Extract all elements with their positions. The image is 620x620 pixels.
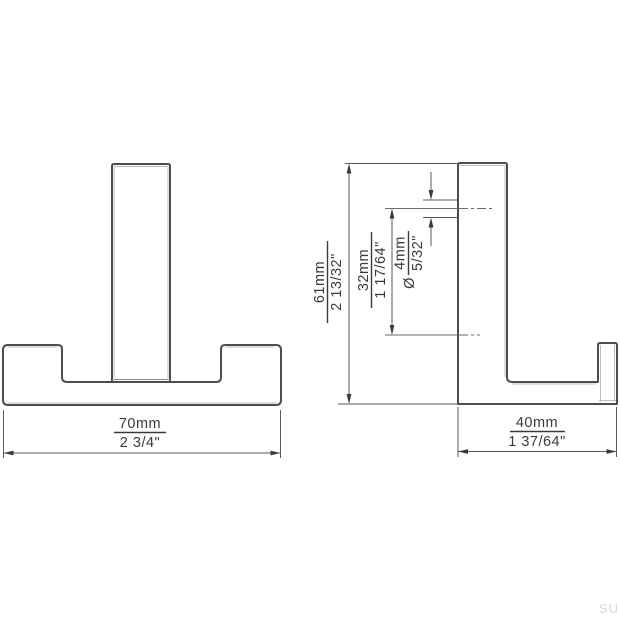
- side-view-outline: [458, 163, 617, 404]
- dimension-hole-offset: 32mm 1 17/64": [356, 209, 394, 336]
- arrow-left-icon: [458, 449, 468, 454]
- height-inch: 2 13/32": [329, 253, 345, 311]
- front-width-inch: 2 3/4": [120, 435, 160, 451]
- front-width-mm: 70mm: [119, 416, 161, 432]
- side-view-edge-highlights: [460, 166, 616, 403]
- arrow-down-icon: [347, 394, 352, 404]
- technical-drawing: 70mm 2 3/4": [0, 0, 620, 620]
- arrow-right-icon: [271, 451, 281, 456]
- hole-dia-mm: 4mm: [393, 236, 409, 270]
- hole-detail-top: [385, 200, 492, 218]
- front-view-stem-outline: [112, 164, 170, 382]
- arrow-up-icon: [429, 218, 434, 228]
- arrow-up-icon: [347, 164, 352, 174]
- side-width-mm: 40mm: [516, 415, 558, 431]
- arrow-up-icon: [390, 209, 395, 219]
- hole-dia-symbol: Ø: [402, 277, 418, 289]
- arrow-left-icon: [4, 451, 14, 456]
- side-width-inch: 1 37/64": [508, 434, 566, 450]
- arrow-down-icon: [429, 190, 434, 200]
- dimension-hole-diameter: Ø 4mm 5/32": [393, 172, 434, 289]
- arrow-down-icon: [390, 325, 395, 335]
- front-view-edge-highlights: [8, 167, 276, 404]
- dimension-side-width: 40mm 1 37/64": [458, 407, 617, 457]
- front-view-base-outline: [3, 345, 281, 405]
- hole-dia-inch: 5/32": [410, 235, 426, 271]
- hole-offset-inch: 1 17/64": [373, 241, 389, 299]
- watermark-text: SU: [599, 601, 619, 616]
- drawing-canvas: 70mm 2 3/4": [0, 0, 620, 620]
- height-mm: 61mm: [312, 261, 328, 303]
- front-view: 70mm 2 3/4": [3, 164, 281, 458]
- dimension-front-width: 70mm 2 3/4": [4, 410, 281, 458]
- hole-offset-mm: 32mm: [356, 249, 372, 291]
- side-view: Ø 4mm 5/32" 32mm 1 17/64": [312, 163, 617, 457]
- arrow-right-icon: [607, 449, 617, 454]
